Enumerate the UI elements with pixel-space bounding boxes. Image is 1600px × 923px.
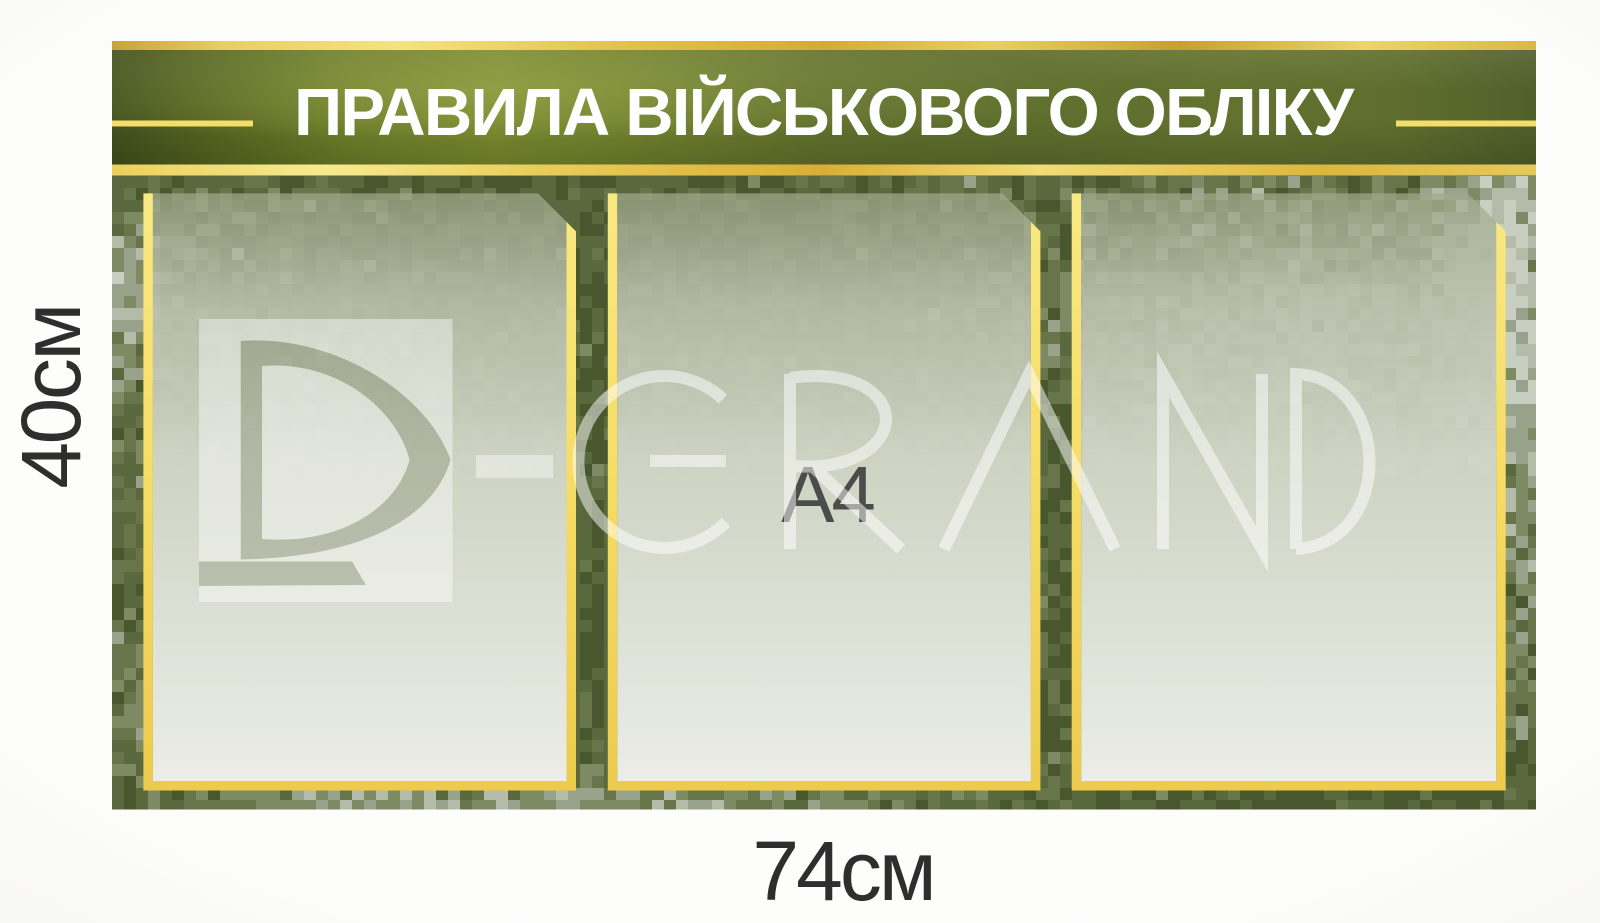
svg-text:74см: 74см [752, 824, 933, 918]
svg-text:ПРАВИЛА ВІЙСЬКОВОГО ОБЛІКУ: ПРАВИЛА ВІЙСЬКОВОГО ОБЛІКУ [294, 74, 1355, 150]
svg-text:40см: 40см [4, 305, 98, 488]
